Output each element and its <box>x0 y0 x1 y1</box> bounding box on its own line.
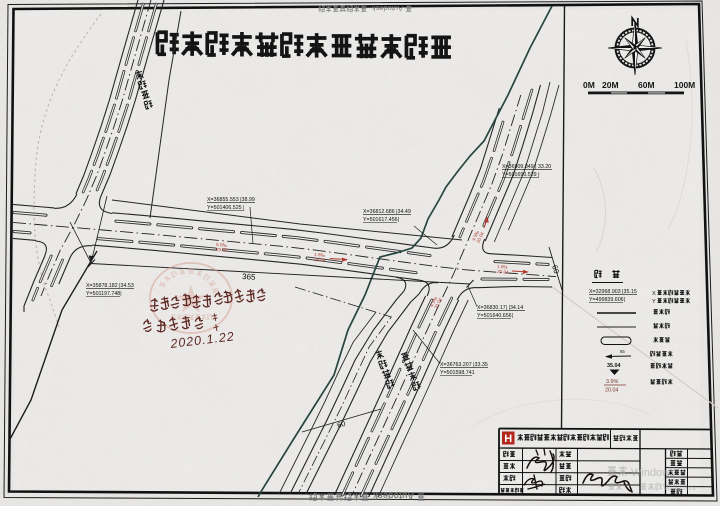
svg-text:60M: 60M <box>638 80 655 90</box>
svg-text:0M: 0M <box>583 80 595 90</box>
svg-text:35.04: 35.04 <box>607 363 621 369</box>
svg-text:26.04: 26.04 <box>314 257 326 263</box>
svg-text:20.04: 20.04 <box>605 388 619 394</box>
svg-text:100M: 100M <box>674 80 695 90</box>
svg-text:X: X <box>652 291 656 297</box>
svg-text:“ ”: “ ” <box>624 483 632 492</box>
svg-text:20.04: 20.04 <box>497 269 509 275</box>
svg-text:Windows: Windows <box>631 467 676 479</box>
svg-text:20M: 20M <box>602 80 619 90</box>
svg-text:H: H <box>504 433 512 445</box>
svg-text:3.9%: 3.9% <box>606 379 618 385</box>
svg-text:Windows: Windows <box>663 483 695 492</box>
svg-text:20.04: 20.04 <box>216 247 228 253</box>
svg-text:Y: Y <box>652 299 656 305</box>
svg-text:65: 65 <box>620 349 625 354</box>
svg-text:365: 365 <box>242 272 256 282</box>
svg-text:Autodesk: Autodesk <box>371 4 403 13</box>
